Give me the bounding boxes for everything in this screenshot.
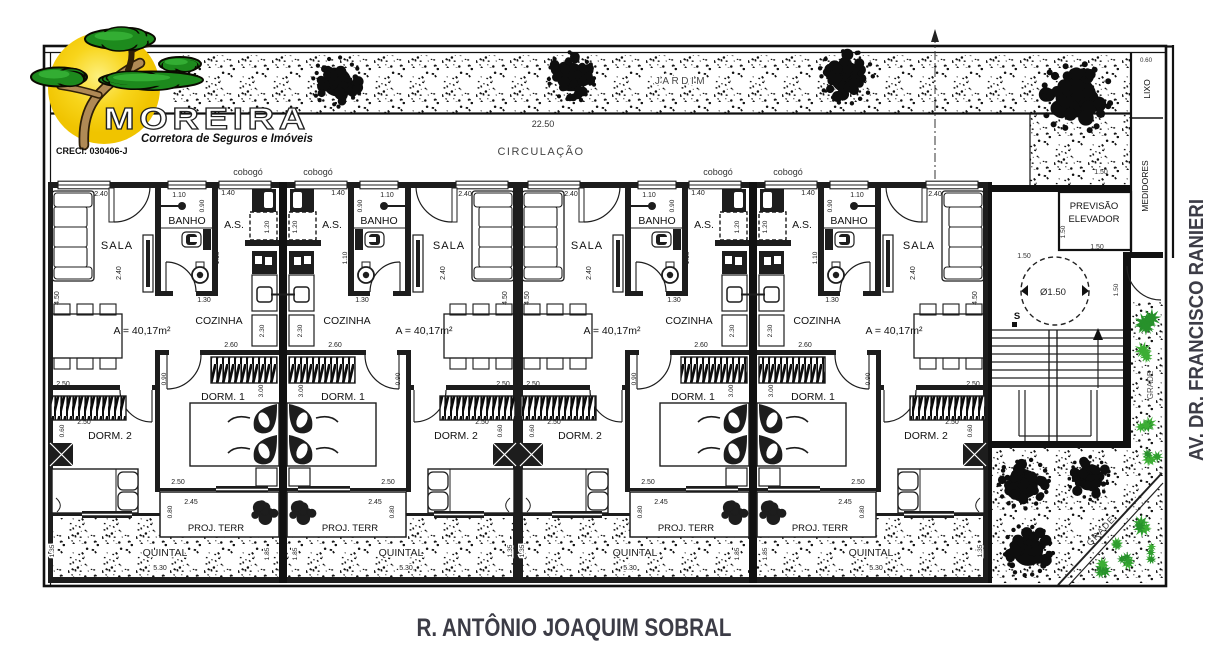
- svg-text:0.80: 0.80: [859, 505, 866, 518]
- svg-text:A.S.: A.S.: [224, 219, 244, 231]
- svg-text:PROJ. TERR: PROJ. TERR: [322, 523, 378, 534]
- svg-text:BANHO: BANHO: [638, 215, 675, 227]
- svg-text:0.60: 0.60: [529, 424, 536, 437]
- svg-text:2.30: 2.30: [297, 324, 304, 337]
- svg-text:2.50: 2.50: [547, 419, 561, 426]
- svg-text:1.10: 1.10: [642, 192, 656, 199]
- svg-text:BANHO: BANHO: [830, 215, 867, 227]
- svg-text:MOREIRA: MOREIRA: [104, 101, 310, 136]
- svg-text:BANHO: BANHO: [168, 215, 205, 227]
- svg-text:3.00: 3.00: [728, 384, 735, 397]
- svg-text:5.30: 5.30: [623, 565, 637, 572]
- svg-text:PROJ. TERR: PROJ. TERR: [188, 523, 244, 534]
- svg-text:1.30: 1.30: [825, 297, 839, 304]
- svg-text:0.90: 0.90: [357, 199, 364, 212]
- svg-text:0.80: 0.80: [167, 505, 174, 518]
- svg-text:0.90: 0.90: [161, 372, 168, 385]
- svg-text:Corretora de Seguros e Imóveis: Corretora de Seguros e Imóveis: [141, 133, 313, 145]
- svg-text:1.20: 1.20: [762, 220, 769, 233]
- svg-text:JARDIM: JARDIM: [655, 76, 707, 87]
- svg-text:1.10: 1.10: [812, 251, 819, 264]
- svg-text:2.30: 2.30: [729, 324, 736, 337]
- svg-text:1.30: 1.30: [355, 297, 369, 304]
- svg-text:A.S.: A.S.: [694, 219, 714, 231]
- svg-text:3.00: 3.00: [258, 384, 265, 397]
- svg-text:BANHO: BANHO: [360, 215, 397, 227]
- svg-text:COZINHA: COZINHA: [793, 315, 840, 327]
- svg-text:1.50: 1.50: [1113, 283, 1120, 296]
- svg-text:1.50: 1.50: [1090, 244, 1104, 251]
- svg-text:3.00: 3.00: [768, 384, 775, 397]
- svg-text:0.90: 0.90: [199, 199, 206, 212]
- svg-text:R. ANTÔNIO JOAQUIM SOBRAL: R. ANTÔNIO JOAQUIM SOBRAL: [417, 612, 732, 642]
- svg-text:1.85: 1.85: [264, 547, 271, 560]
- svg-text:1.30: 1.30: [667, 297, 681, 304]
- svg-text:2.50: 2.50: [475, 419, 489, 426]
- svg-text:cobogó: cobogó: [703, 167, 733, 177]
- svg-text:2.40: 2.40: [586, 266, 593, 280]
- svg-text:1.20: 1.20: [264, 220, 271, 233]
- svg-text:2.60: 2.60: [798, 342, 812, 349]
- svg-text:0.90: 0.90: [669, 199, 676, 212]
- svg-text:QUINTAL: QUINTAL: [613, 547, 658, 559]
- svg-text:2.50: 2.50: [851, 479, 865, 486]
- svg-text:2.40: 2.40: [94, 191, 108, 198]
- svg-text:A.S.: A.S.: [322, 219, 342, 231]
- svg-text:SALA: SALA: [101, 240, 133, 252]
- svg-text:5.30: 5.30: [153, 565, 167, 572]
- svg-text:cobogó: cobogó: [303, 167, 333, 177]
- svg-text:5.30: 5.30: [399, 565, 413, 572]
- svg-text:2.40: 2.40: [564, 191, 578, 198]
- svg-text:DORM. 1: DORM. 1: [321, 391, 365, 403]
- svg-text:1.85: 1.85: [762, 547, 769, 560]
- svg-text:CRECI: 030406-J: CRECI: 030406-J: [56, 146, 128, 156]
- svg-text:2.40: 2.40: [458, 191, 472, 198]
- svg-text:DORM. 2: DORM. 2: [88, 430, 132, 442]
- svg-text:4.50: 4.50: [502, 291, 509, 305]
- svg-text:2.50: 2.50: [641, 479, 655, 486]
- svg-text:22.50: 22.50: [532, 119, 555, 129]
- svg-text:2.40: 2.40: [116, 266, 123, 280]
- svg-text:COZINHA: COZINHA: [323, 315, 370, 327]
- svg-text:CIRCULAÇÃO: CIRCULAÇÃO: [497, 145, 584, 158]
- svg-text:2.60: 2.60: [224, 342, 238, 349]
- svg-text:0.60: 0.60: [497, 424, 504, 437]
- svg-text:AV. DR. FRANCISCO RANIERI: AV. DR. FRANCISCO RANIERI: [1186, 199, 1208, 461]
- svg-text:PREVISÃO: PREVISÃO: [1070, 201, 1119, 212]
- svg-text:1.40: 1.40: [221, 190, 235, 197]
- svg-text:4.50: 4.50: [54, 291, 61, 305]
- svg-text:1.35: 1.35: [519, 544, 526, 557]
- svg-text:5.30: 5.30: [869, 565, 883, 572]
- svg-text:cobogó: cobogó: [233, 167, 263, 177]
- svg-text:4.50: 4.50: [524, 291, 531, 305]
- svg-text:2.45: 2.45: [184, 499, 198, 506]
- svg-text:1.35: 1.35: [977, 544, 984, 557]
- svg-text:0.90: 0.90: [395, 372, 402, 385]
- svg-text:1.10: 1.10: [684, 251, 691, 264]
- svg-text:2.50: 2.50: [77, 419, 91, 426]
- svg-text:1.40: 1.40: [691, 190, 705, 197]
- svg-text:2.45: 2.45: [654, 499, 668, 506]
- svg-text:1.50: 1.50: [1094, 169, 1108, 176]
- svg-text:COZINHA: COZINHA: [665, 315, 712, 327]
- svg-text:1.20: 1.20: [292, 220, 299, 233]
- svg-text:QUINTAL: QUINTAL: [849, 547, 894, 559]
- svg-text:1.50: 1.50: [1017, 253, 1031, 260]
- svg-text:2.60: 2.60: [694, 342, 708, 349]
- svg-text:2.30: 2.30: [767, 324, 774, 337]
- svg-text:2.40: 2.40: [440, 266, 447, 280]
- svg-text:DORM. 1: DORM. 1: [201, 391, 245, 403]
- svg-text:1.50: 1.50: [1060, 225, 1067, 238]
- svg-text:1.10: 1.10: [214, 251, 221, 264]
- svg-text:3.00: 3.00: [298, 384, 305, 397]
- svg-text:1.40: 1.40: [801, 190, 815, 197]
- svg-text:DORM. 1: DORM. 1: [791, 391, 835, 403]
- svg-text:1.20: 1.20: [734, 220, 741, 233]
- svg-text:DORM. 2: DORM. 2: [434, 430, 478, 442]
- svg-text:A.S.: A.S.: [792, 219, 812, 231]
- svg-text:COZINHA: COZINHA: [195, 315, 242, 327]
- svg-text:2.50: 2.50: [171, 479, 185, 486]
- svg-text:1.10: 1.10: [172, 192, 186, 199]
- svg-text:1.10: 1.10: [342, 251, 349, 264]
- svg-text:2.40: 2.40: [928, 191, 942, 198]
- svg-text:4.50: 4.50: [972, 291, 979, 305]
- svg-text:LIXO: LIXO: [1142, 79, 1152, 99]
- svg-text:1.10: 1.10: [850, 192, 864, 199]
- svg-text:PROJ. TERR: PROJ. TERR: [658, 523, 714, 534]
- svg-text:2.30: 2.30: [259, 324, 266, 337]
- svg-text:0.80: 0.80: [637, 505, 644, 518]
- svg-text:1.30: 1.30: [197, 297, 211, 304]
- svg-text:Ø1.50: Ø1.50: [1040, 287, 1066, 298]
- svg-text:DORM. 1: DORM. 1: [671, 391, 715, 403]
- svg-text:2.40: 2.40: [910, 266, 917, 280]
- svg-text:1.35: 1.35: [507, 544, 514, 557]
- svg-text:0.80: 0.80: [389, 505, 396, 518]
- svg-text:ELEVADOR: ELEVADOR: [1068, 214, 1119, 225]
- svg-text:cobogó: cobogó: [773, 167, 803, 177]
- svg-text:0.90: 0.90: [631, 372, 638, 385]
- svg-text:1.10: 1.10: [380, 192, 394, 199]
- svg-text:QUINTAL: QUINTAL: [379, 547, 424, 559]
- svg-text:0.90: 0.90: [865, 372, 872, 385]
- svg-text:0.60: 0.60: [967, 424, 974, 437]
- svg-text:SALA: SALA: [571, 240, 603, 252]
- svg-text:SALA: SALA: [903, 240, 935, 252]
- svg-text:0.90: 0.90: [827, 199, 834, 212]
- svg-text:2.60: 2.60: [328, 342, 342, 349]
- svg-text:DORM. 2: DORM. 2: [904, 430, 948, 442]
- svg-text:1.35: 1.35: [49, 544, 56, 557]
- svg-text:1.40: 1.40: [331, 190, 345, 197]
- svg-text:2.50: 2.50: [945, 419, 959, 426]
- svg-text:0.60: 0.60: [1140, 57, 1153, 64]
- svg-text:1.85: 1.85: [734, 547, 741, 560]
- svg-text:PROJ. TERR: PROJ. TERR: [792, 523, 848, 534]
- svg-text:2.45: 2.45: [368, 499, 382, 506]
- svg-text:2.45: 2.45: [838, 499, 852, 506]
- svg-text:2.50: 2.50: [381, 479, 395, 486]
- svg-text:DORM. 2: DORM. 2: [558, 430, 602, 442]
- svg-text:S: S: [1014, 311, 1020, 322]
- svg-text:QUINTAL: QUINTAL: [143, 547, 188, 559]
- svg-text:0.60: 0.60: [59, 424, 66, 437]
- svg-text:GRADE: GRADE: [1146, 371, 1155, 399]
- svg-text:SALA: SALA: [433, 240, 465, 252]
- svg-text:MEDIDORES: MEDIDORES: [1140, 160, 1150, 212]
- svg-text:1.85: 1.85: [292, 547, 299, 560]
